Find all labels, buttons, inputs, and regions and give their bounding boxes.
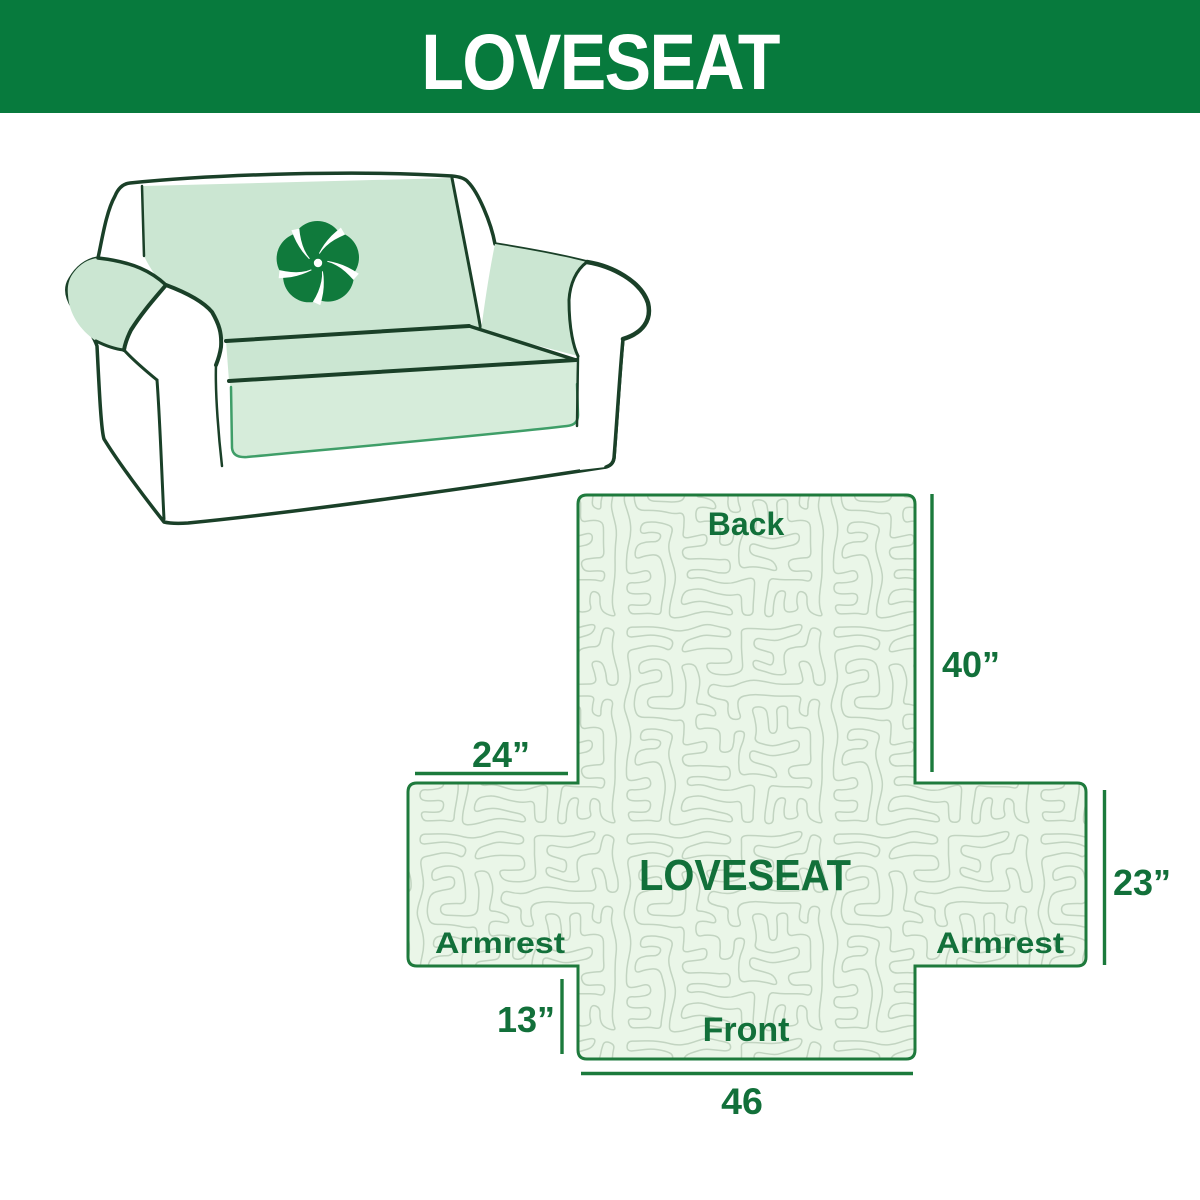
svg-text:Front: Front xyxy=(703,1011,790,1049)
svg-text:46: 46 xyxy=(721,1080,763,1122)
svg-text:40”: 40” xyxy=(942,644,1000,685)
svg-text:24”: 24” xyxy=(472,734,530,775)
svg-text:23”: 23” xyxy=(1113,862,1171,903)
svg-text:Armrest: Armrest xyxy=(435,927,565,960)
svg-text:Back: Back xyxy=(708,506,785,542)
svg-text:Armrest: Armrest xyxy=(936,927,1064,960)
svg-text:13”: 13” xyxy=(497,999,555,1040)
svg-text:LOVESEAT: LOVESEAT xyxy=(639,851,851,900)
